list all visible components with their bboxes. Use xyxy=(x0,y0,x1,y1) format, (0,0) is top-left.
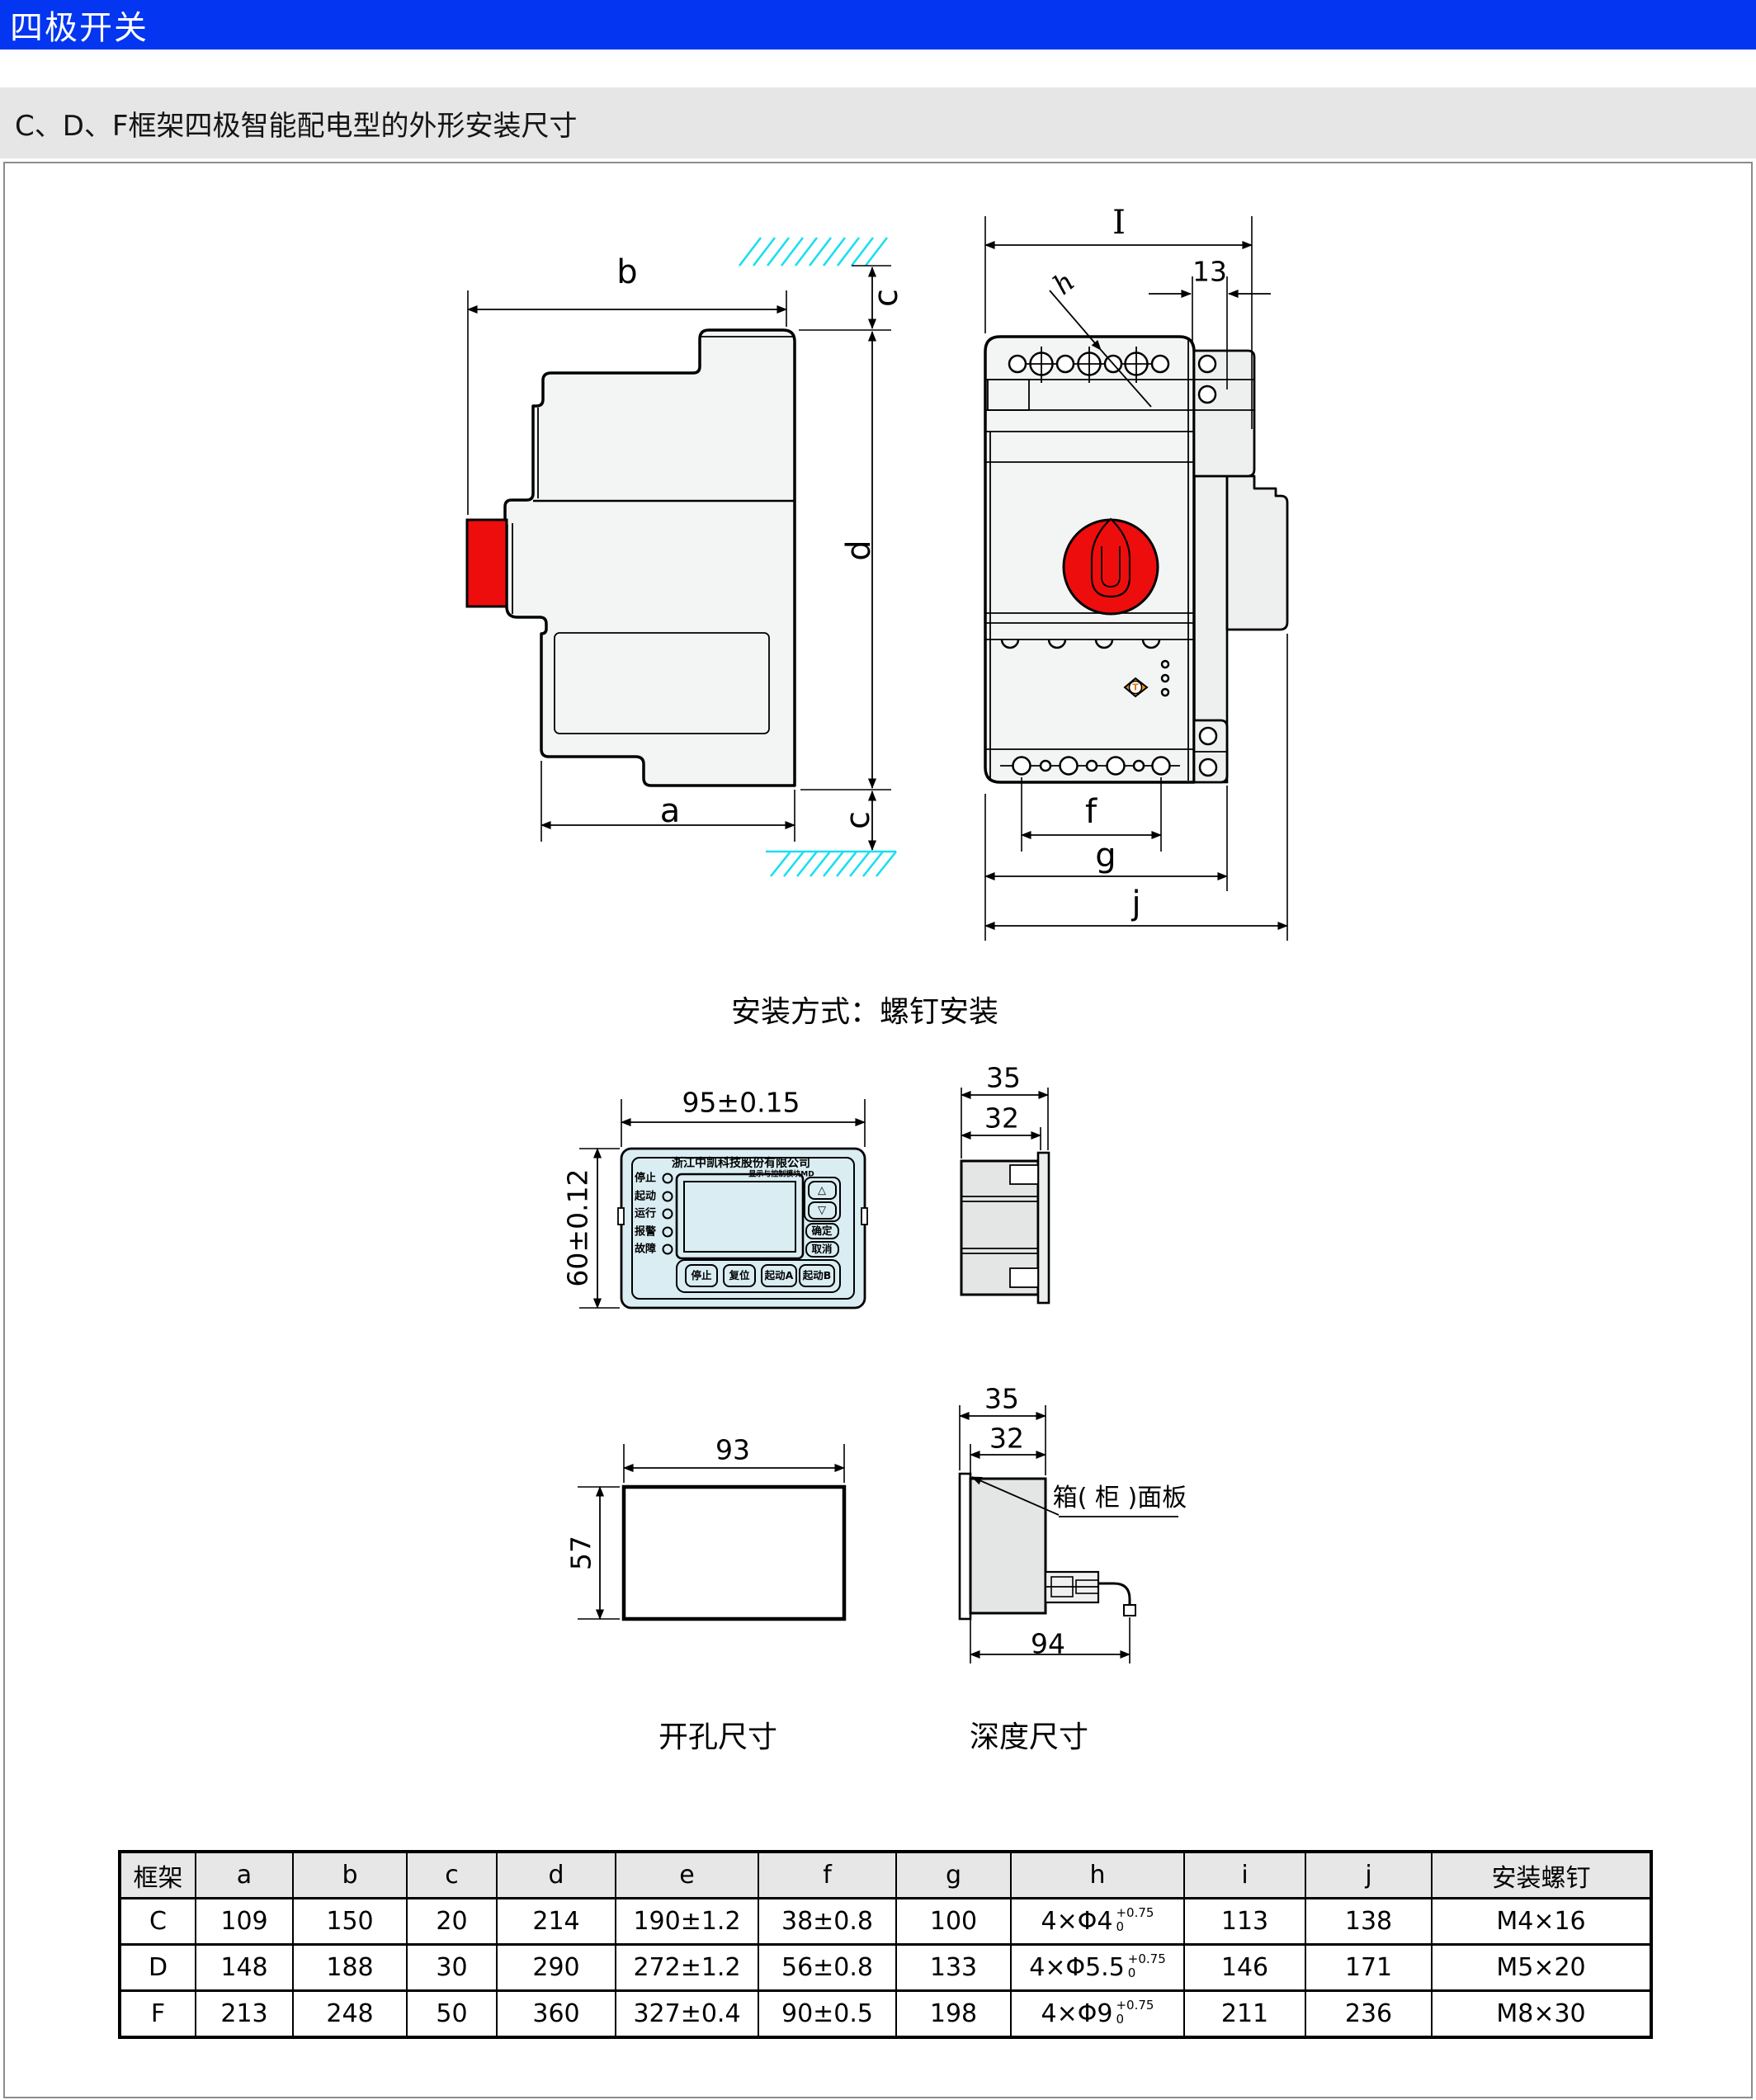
cell-i: 113 xyxy=(1184,1899,1305,1945)
side-view-red-handle xyxy=(467,520,507,606)
dim-label-95: 95±0.15 xyxy=(682,1089,800,1116)
table-header-row: 框架 a b c d e f g h i j 安装螺钉 xyxy=(120,1852,1651,1899)
depth-caption: 深度尺寸 xyxy=(970,1723,1088,1753)
mounting-caption: 安装方式：螺钉安装 xyxy=(731,998,998,1027)
cell-d: 214 xyxy=(497,1899,616,1945)
dim-label-f: f xyxy=(1085,795,1097,828)
cell-f: 38±0.8 xyxy=(758,1899,896,1945)
cell-c: 20 xyxy=(407,1899,497,1945)
cell-c: 50 xyxy=(407,1991,497,2038)
led-alarm xyxy=(663,1228,673,1237)
cell-frame: C xyxy=(120,1899,196,1945)
cell-screw: M4×16 xyxy=(1432,1899,1651,1945)
col-header-f: f xyxy=(758,1852,896,1899)
led-label-start: 起动 xyxy=(635,1192,656,1202)
side-view xyxy=(467,238,896,876)
panel-company-name: 浙江中凯科技股份有限公司 xyxy=(672,1158,810,1169)
technical-drawing xyxy=(0,0,1756,2100)
down-arrow-icon: ▽ xyxy=(818,1206,826,1216)
cell-h: 4×Φ5.5+0.750 xyxy=(1011,1945,1184,1991)
cell-c: 30 xyxy=(407,1945,497,1991)
dim-label-32-depth: 32 xyxy=(989,1425,1024,1452)
cutout-drawing xyxy=(578,1444,844,1619)
cell-frame: D xyxy=(120,1945,196,1991)
dimension-table: 框架 a b c d e f g h i j 安装螺钉 C 109 150 20… xyxy=(118,1850,1653,2039)
cell-f: 56±0.8 xyxy=(758,1945,896,1991)
col-header-d: d xyxy=(497,1852,616,1899)
cell-g: 133 xyxy=(896,1945,1011,1991)
dim-label-j: j xyxy=(1131,887,1140,920)
dim-label-b: b xyxy=(616,256,637,289)
cell-screw: M8×30 xyxy=(1432,1991,1651,2038)
dim-label-13: 13 xyxy=(1192,258,1227,286)
col-header-i: i xyxy=(1184,1852,1305,1899)
cell-e: 327±0.4 xyxy=(616,1991,758,2038)
dim-label-57: 57 xyxy=(568,1536,595,1570)
cell-j: 138 xyxy=(1305,1899,1432,1945)
cell-a: 109 xyxy=(196,1899,293,1945)
dim-label-94: 94 xyxy=(1031,1630,1065,1658)
table-row-f: F 213 248 50 360 327±0.4 90±0.5 198 4×Φ9… xyxy=(120,1991,1651,2038)
test-button-label: T xyxy=(1132,683,1139,692)
cell-b: 150 xyxy=(293,1899,407,1945)
led-label-stop: 停止 xyxy=(635,1173,656,1184)
cell-d: 290 xyxy=(497,1945,616,1991)
led-label-alarm: 报警 xyxy=(635,1227,656,1238)
cell-g: 198 xyxy=(896,1991,1011,2038)
cell-i: 211 xyxy=(1184,1991,1305,2038)
rear-connector xyxy=(1046,1572,1135,1616)
dim-label-d: d xyxy=(843,540,876,560)
stop-button-label: 停止 xyxy=(691,1271,711,1281)
table-row-d: D 148 188 30 290 272±1.2 56±0.8 133 4×Φ5… xyxy=(120,1945,1651,1991)
panel-module-label: 显示与控制模块MD xyxy=(748,1172,814,1179)
cell-f: 90±0.5 xyxy=(758,1991,896,2038)
led-label-fault: 故障 xyxy=(635,1244,656,1255)
cell-b: 188 xyxy=(293,1945,407,1991)
cell-e: 190±1.2 xyxy=(616,1899,758,1945)
rotary-handle xyxy=(1064,519,1158,614)
dim-label-35-depth: 35 xyxy=(984,1385,1019,1413)
dim-label-a: a xyxy=(660,795,681,828)
table-row-c: C 109 150 20 214 190±1.2 38±0.8 100 4×Φ4… xyxy=(120,1899,1651,1945)
dim-label-g: g xyxy=(1095,839,1116,872)
cabinet-panel-plate xyxy=(960,1474,970,1619)
led-stop xyxy=(663,1174,673,1183)
cell-j: 171 xyxy=(1305,1945,1432,1991)
cell-i: 146 xyxy=(1184,1945,1305,1991)
col-header-c: c xyxy=(407,1852,497,1899)
col-header-a: a xyxy=(196,1852,293,1899)
cabinet-panel-label: 箱( 柜 )面板 xyxy=(1053,1486,1187,1511)
led-label-run: 运行 xyxy=(635,1209,656,1220)
col-header-j: j xyxy=(1305,1852,1432,1899)
cutout-caption: 开孔尺寸 xyxy=(658,1723,777,1753)
dim-label-I: I xyxy=(1112,206,1126,239)
cell-h: 4×Φ9+0.750 xyxy=(1011,1991,1184,2038)
col-header-g: g xyxy=(896,1852,1011,1899)
up-arrow-icon: △ xyxy=(818,1186,826,1196)
led-start xyxy=(663,1192,673,1201)
led-run xyxy=(663,1210,673,1219)
cell-a: 213 xyxy=(196,1991,293,2038)
cell-frame: F xyxy=(120,1991,196,2038)
col-header-frame: 框架 xyxy=(120,1852,196,1899)
col-header-screw: 安装螺钉 xyxy=(1432,1852,1651,1899)
led-fault xyxy=(663,1245,673,1254)
wall-hatch-bottom xyxy=(766,852,896,876)
cell-a: 148 xyxy=(196,1945,293,1991)
wall-hatch-top xyxy=(739,238,887,266)
cell-e: 272±1.2 xyxy=(616,1945,758,1991)
col-header-e: e xyxy=(616,1852,758,1899)
cell-h: 4×Φ4+0.750 xyxy=(1011,1899,1184,1945)
confirm-button-label: 确定 xyxy=(811,1226,832,1237)
dim-label-60: 60±0.12 xyxy=(564,1168,592,1286)
col-header-h: h xyxy=(1011,1852,1184,1899)
cell-b: 248 xyxy=(293,1991,407,2038)
cell-g: 100 xyxy=(896,1899,1011,1945)
cell-j: 236 xyxy=(1305,1991,1432,2038)
cell-d: 360 xyxy=(497,1991,616,2038)
dim-label-93: 93 xyxy=(715,1437,750,1464)
cell-screw: M5×20 xyxy=(1432,1945,1651,1991)
dim-label-32-side: 32 xyxy=(984,1105,1019,1132)
col-header-b: b xyxy=(293,1852,407,1899)
dim-label-c-bottom: c xyxy=(842,811,875,829)
front-view xyxy=(985,216,1287,941)
dim-label-c-top: c xyxy=(870,289,903,307)
reset-button-label: 复位 xyxy=(729,1271,749,1281)
dim-label-35-side: 35 xyxy=(986,1064,1021,1092)
cancel-button-label: 取消 xyxy=(811,1244,832,1255)
page: 四极开关 C、D、F框架四极智能配电型的外形安装尺寸 xyxy=(0,0,1756,2100)
start-b-button-label: 起动B xyxy=(803,1271,832,1281)
start-a-button-label: 起动A xyxy=(765,1271,794,1281)
